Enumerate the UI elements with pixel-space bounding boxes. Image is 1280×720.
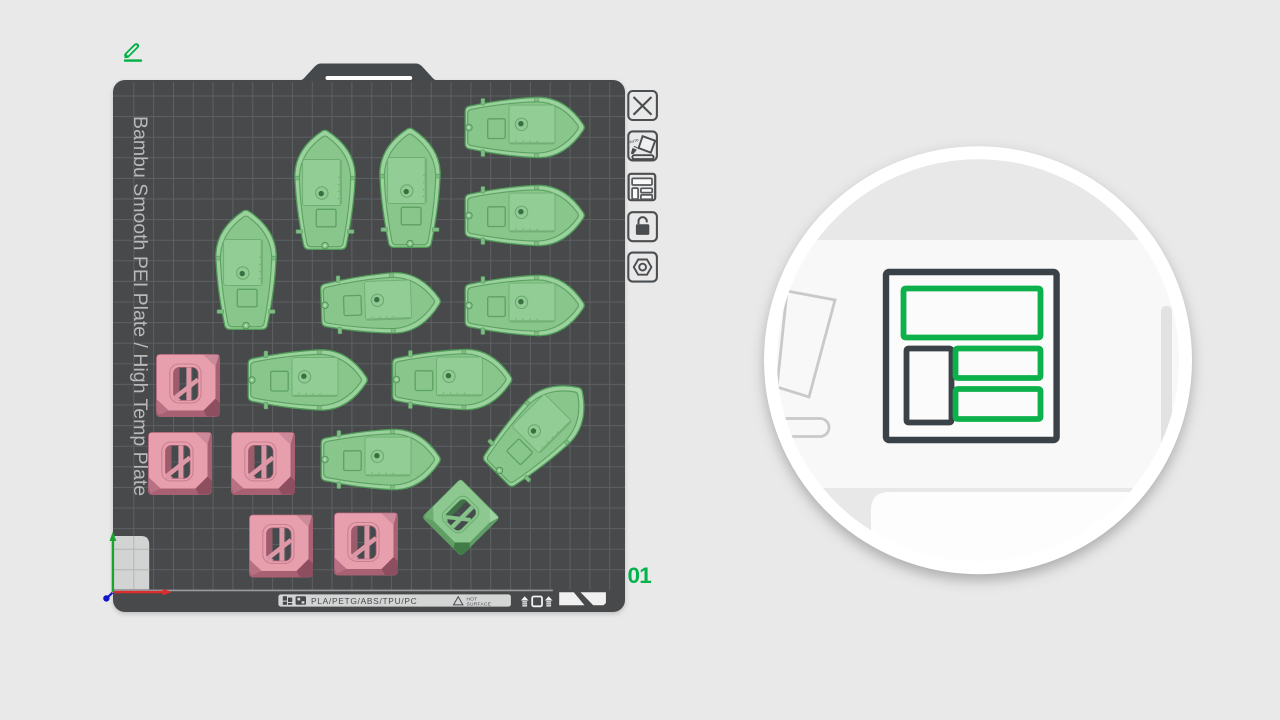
svg-text:01: 01	[628, 563, 652, 588]
svg-text:SURFACE: SURFACE	[467, 602, 492, 608]
svg-text:Bambu Smooth PEI Plate / High: Bambu Smooth PEI Plate / High Temp Plate	[129, 116, 151, 496]
svg-text:HOT: HOT	[467, 596, 478, 602]
svg-text:PLA/PETG/ABS/TPU/PC: PLA/PETG/ABS/TPU/PC	[311, 596, 417, 606]
